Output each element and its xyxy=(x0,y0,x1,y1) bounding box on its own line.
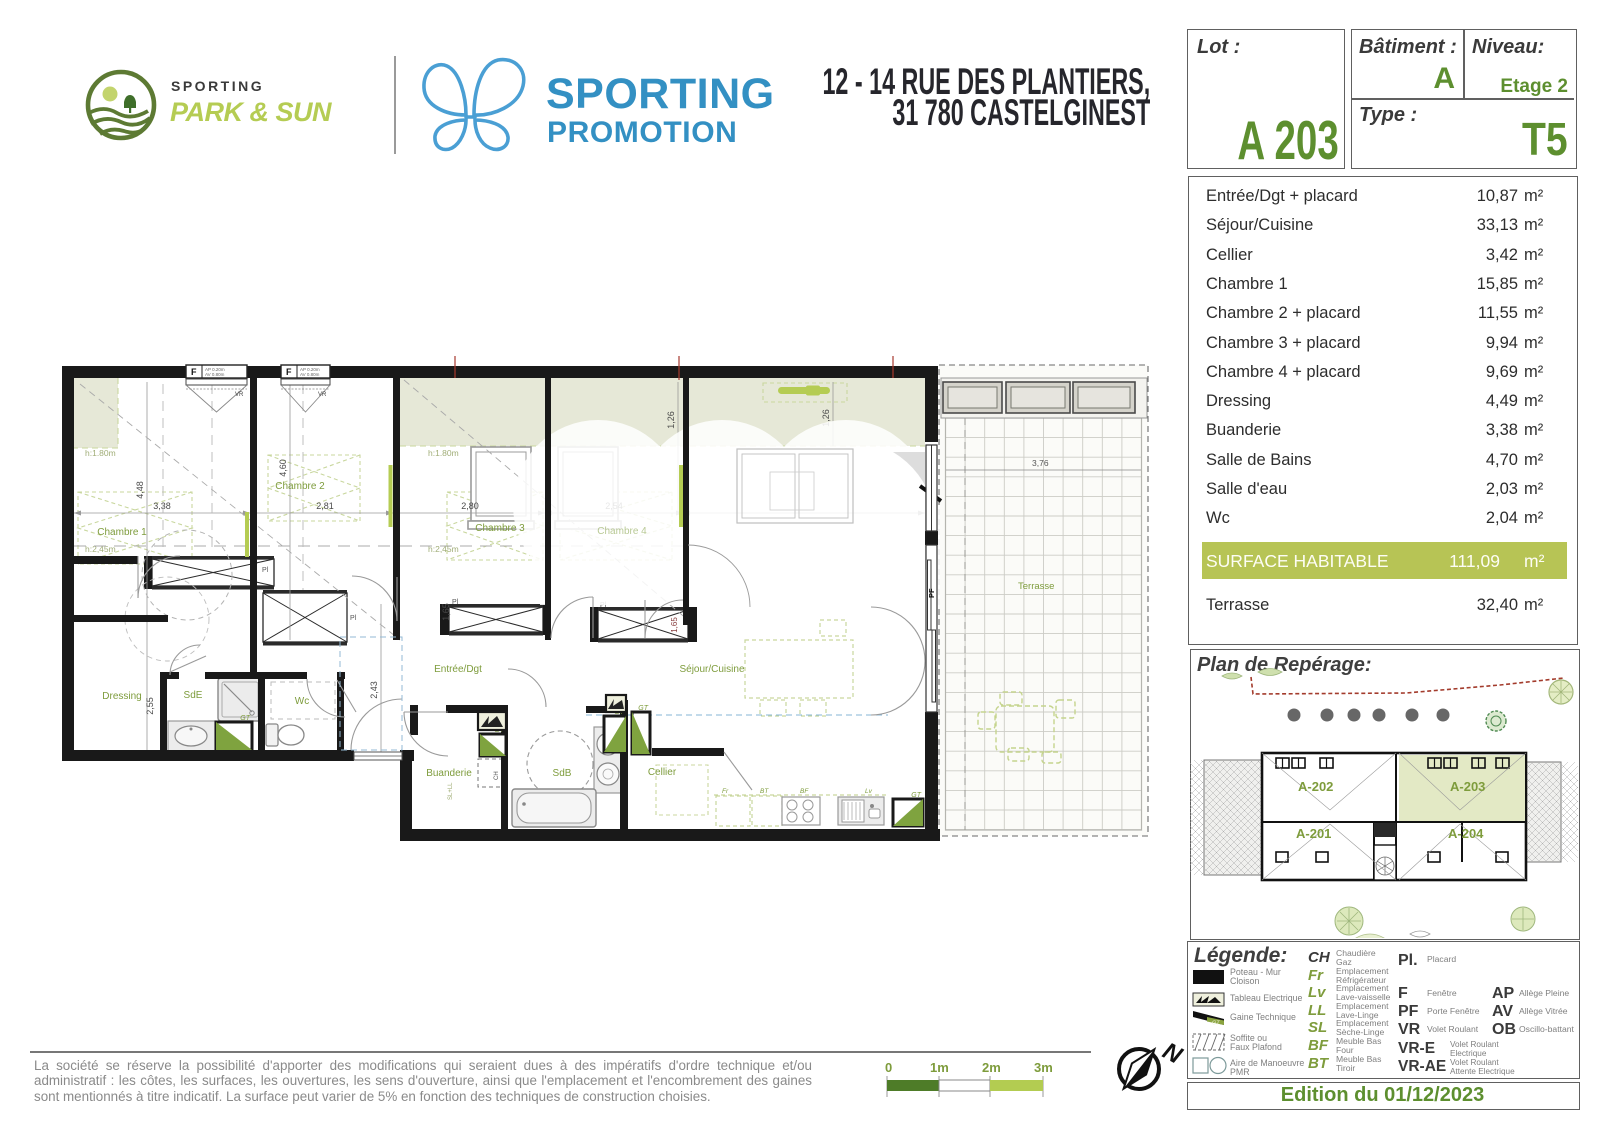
svg-text:Dressing: Dressing xyxy=(102,691,141,702)
svg-text:BF: BF xyxy=(800,788,809,795)
svg-text:1,26: 1,26 xyxy=(666,411,676,429)
svg-text:3,76: 3,76 xyxy=(1032,458,1049,468)
svg-text:F: F xyxy=(191,367,197,377)
svg-text:GT: GT xyxy=(240,715,250,722)
svg-text:3,38: 3,38 xyxy=(153,501,171,511)
svg-text:BT: BT xyxy=(760,788,769,795)
svg-text:Cellier: Cellier xyxy=(648,767,677,778)
svg-text:Pl: Pl xyxy=(350,615,357,622)
svg-text:Wc: Wc xyxy=(295,696,309,707)
svg-text:GT: GT xyxy=(911,792,921,799)
svg-text:2m: 2m xyxy=(982,1060,1001,1075)
svg-text:A-201: A-201 xyxy=(1296,826,1331,841)
svg-text:1m: 1m xyxy=(930,1060,949,1075)
svg-text:Séjour/Cuisine: Séjour/Cuisine xyxy=(679,664,744,675)
svg-text:F: F xyxy=(286,367,292,377)
svg-text:PF: PF xyxy=(927,588,936,598)
svg-text:VR: VR xyxy=(235,392,244,398)
svg-text:AV 0.80m: AV 0.80m xyxy=(205,372,225,377)
svg-text:A-202: A-202 xyxy=(1298,779,1333,794)
svg-text:Entrée/Dgt: Entrée/Dgt xyxy=(434,664,482,675)
svg-text:CH: CH xyxy=(494,771,500,780)
svg-text:2,55: 2,55 xyxy=(145,697,155,715)
svg-text:1,65: 1,65 xyxy=(670,617,679,633)
svg-text:Lv: Lv xyxy=(865,788,873,795)
svg-text:0: 0 xyxy=(885,1060,892,1075)
svg-text:VR: VR xyxy=(318,392,327,398)
svg-text:h:1.80m: h:1.80m xyxy=(428,448,459,458)
svg-text:2,81: 2,81 xyxy=(316,501,334,511)
svg-text:Terrasse: Terrasse xyxy=(1018,581,1054,592)
svg-text:GT: GT xyxy=(638,705,648,712)
svg-text:Chambre 2: Chambre 2 xyxy=(275,481,325,492)
svg-text:2,80: 2,80 xyxy=(461,501,479,511)
svg-text:4,60: 4,60 xyxy=(278,459,288,477)
svg-text:Buanderie: Buanderie xyxy=(426,768,472,779)
svg-text:SdB: SdB xyxy=(553,768,572,779)
svg-text:SdE: SdE xyxy=(184,690,203,701)
svg-text:Chambre 4: Chambre 4 xyxy=(597,526,647,537)
svg-text:Chambre 1: Chambre 1 xyxy=(97,527,147,538)
svg-text:Chambre 3: Chambre 3 xyxy=(475,523,525,534)
svg-text:SL+LL: SL+LL xyxy=(448,782,454,800)
svg-text:AV 0.80m: AV 0.80m xyxy=(300,372,320,377)
svg-text:4,48: 4,48 xyxy=(135,481,145,499)
svg-text:3m: 3m xyxy=(1034,1060,1053,1075)
svg-text:A-204: A-204 xyxy=(1448,826,1484,841)
svg-text:GT: GT xyxy=(1212,1021,1220,1027)
svg-text:Pl: Pl xyxy=(262,567,269,574)
svg-text:2,43: 2,43 xyxy=(369,681,379,699)
svg-text:Pl: Pl xyxy=(452,599,459,606)
svg-text:Fr: Fr xyxy=(722,788,729,795)
svg-text:A-203: A-203 xyxy=(1450,779,1485,794)
svg-text:1,65: 1,65 xyxy=(441,603,451,621)
svg-text:h:1.80m: h:1.80m xyxy=(85,448,116,458)
